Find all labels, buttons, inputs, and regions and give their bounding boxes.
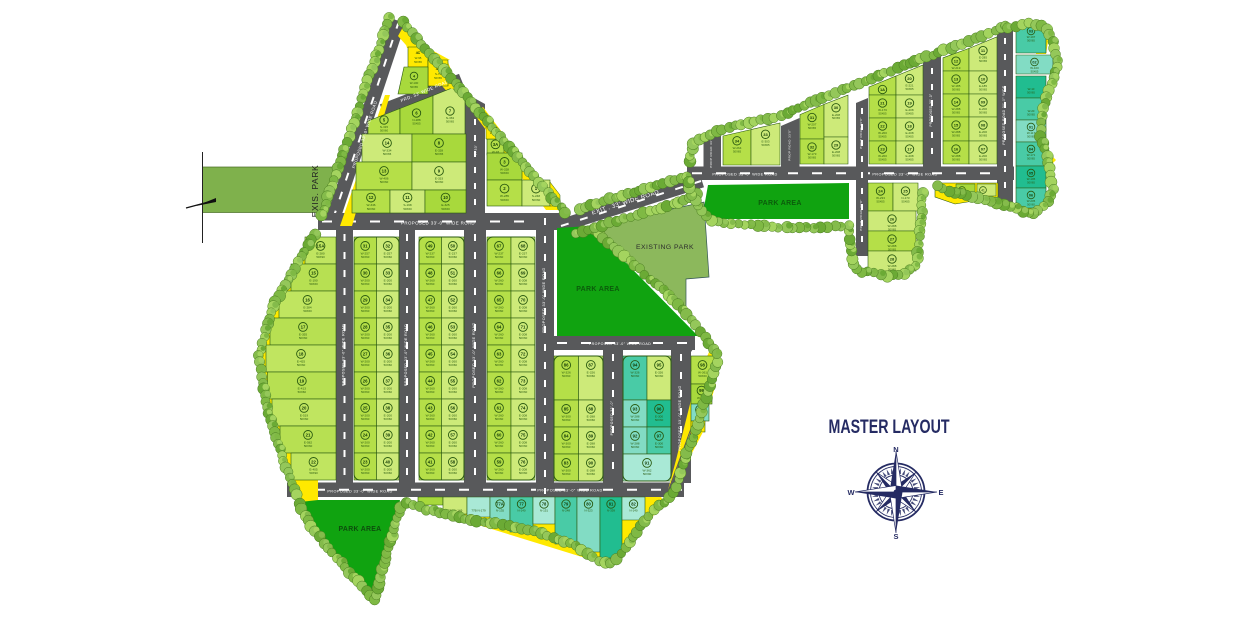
svg-text:50X65: 50X65 <box>1027 91 1035 95</box>
svg-text:34: 34 <box>385 298 390 303</box>
svg-text:84: 84 <box>564 434 569 439</box>
svg-text:50X60: 50X60 <box>298 390 307 394</box>
svg-text:72: 72 <box>521 352 526 357</box>
svg-text:E: E <box>938 488 943 497</box>
svg-text:50: 50 <box>450 244 455 249</box>
svg-text:50X60: 50X60 <box>631 374 640 378</box>
svg-text:50X60: 50X60 <box>361 390 370 394</box>
svg-text:PROPOSED 33'-0" WIDE ROAD: PROPOSED 33'-0" WIDE ROAD <box>872 173 937 177</box>
svg-text:50X60: 50X60 <box>562 445 571 449</box>
svg-text:92: 92 <box>633 434 638 439</box>
svg-text:PROPOSED ROAD 30'-0" WIDE: PROPOSED ROAD 30'-0" WIDE <box>1002 85 1006 145</box>
svg-text:98: 98 <box>700 363 705 368</box>
svg-text:82: 82 <box>631 502 636 507</box>
svg-text:PROPOSED 33'-0" WIDE ROAD: PROPOSED 33'-0" WIDE ROAD <box>401 221 475 226</box>
svg-text:03: 03 <box>1029 30 1033 34</box>
svg-text:28: 28 <box>363 325 368 330</box>
svg-text:50X60: 50X60 <box>449 363 458 367</box>
svg-text:50X65: 50X65 <box>446 120 455 124</box>
svg-text:EXISTING PARK: EXISTING PARK <box>636 244 694 251</box>
svg-text:PROPOSED 33'-0" WIDE ROAD: PROPOSED 33'-0" WIDE ROAD <box>678 385 682 450</box>
svg-text:50X60: 50X60 <box>304 444 313 448</box>
svg-text:89: 89 <box>588 434 593 439</box>
svg-text:50X65: 50X65 <box>808 126 817 130</box>
svg-text:50X60: 50X60 <box>426 336 435 340</box>
svg-text:34: 34 <box>735 138 740 143</box>
svg-text:23: 23 <box>880 147 885 152</box>
svg-text:N-323: N-323 <box>584 509 593 513</box>
svg-text:19: 19 <box>907 101 912 106</box>
svg-text:50X60: 50X60 <box>631 418 640 422</box>
svg-text:15: 15 <box>954 123 959 128</box>
svg-text:30: 30 <box>834 105 839 110</box>
svg-text:29: 29 <box>363 298 368 303</box>
svg-text:50X60: 50X60 <box>384 444 393 448</box>
svg-text:PARK AREA: PARK AREA <box>339 526 382 533</box>
svg-text:21: 21 <box>880 101 885 106</box>
svg-text:50X60: 50X60 <box>519 471 528 475</box>
svg-text:83: 83 <box>564 461 569 466</box>
svg-text:39: 39 <box>385 433 390 438</box>
svg-text:76: 76 <box>521 460 526 465</box>
svg-text:74: 74 <box>521 406 526 411</box>
svg-text:50X65: 50X65 <box>832 154 841 158</box>
svg-text:PROPOSED 33'-0" WIDE ROAD: PROPOSED 33'-0" WIDE ROAD <box>537 489 602 493</box>
svg-text:91: 91 <box>645 461 650 466</box>
svg-text:40: 40 <box>385 460 390 465</box>
svg-text:77: 77 <box>519 502 524 507</box>
svg-text:27: 27 <box>890 237 895 242</box>
svg-text:14: 14 <box>385 141 390 146</box>
svg-text:32: 32 <box>385 244 390 249</box>
svg-text:50X60: 50X60 <box>361 444 370 448</box>
svg-text:50X60: 50X60 <box>698 374 707 378</box>
svg-text:62: 62 <box>497 379 502 384</box>
svg-text:50X60: 50X60 <box>519 390 528 394</box>
svg-text:50X65: 50X65 <box>1031 70 1039 74</box>
svg-text:50X60: 50X60 <box>384 336 393 340</box>
svg-text:50X60: 50X60 <box>532 198 541 202</box>
svg-text:52: 52 <box>450 298 455 303</box>
svg-text:W-95: W-95 <box>415 56 422 60</box>
svg-text:3A: 3A <box>493 142 499 147</box>
svg-text:PROPOSED 33'-0" WIDE ROAD: PROPOSED 33'-0" WIDE ROAD <box>542 267 546 332</box>
svg-text:W-171: W-171 <box>1027 153 1036 157</box>
svg-text:54: 54 <box>450 352 455 357</box>
svg-text:49: 49 <box>428 244 433 249</box>
svg-text:50X60: 50X60 <box>426 309 435 313</box>
svg-text:81: 81 <box>609 502 614 507</box>
svg-text:73: 73 <box>521 379 526 384</box>
svg-text:50X60: 50X60 <box>500 171 509 175</box>
svg-text:50X90: 50X90 <box>643 472 652 476</box>
svg-text:13: 13 <box>382 169 387 174</box>
svg-text:W-197: W-197 <box>1027 35 1036 39</box>
svg-text:PROP ROAD 33'0": PROP ROAD 33'0" <box>788 129 792 160</box>
svg-text:15A: 15A <box>317 244 325 249</box>
svg-text:20: 20 <box>907 76 912 81</box>
svg-text:50X65: 50X65 <box>952 111 961 115</box>
svg-text:PROPOSED 33'-0" WIDE ROAD: PROPOSED 33'-0" WIDE ROAD <box>327 490 392 494</box>
svg-text:50X60: 50X60 <box>495 336 504 340</box>
svg-text:70: 70 <box>521 298 526 303</box>
svg-text:N-359: N-359 <box>607 509 616 513</box>
svg-text:27: 27 <box>363 352 368 357</box>
svg-text:24: 24 <box>878 189 883 194</box>
svg-text:87: 87 <box>588 363 593 368</box>
svg-text:50X65: 50X65 <box>952 134 961 138</box>
svg-text:50X60: 50X60 <box>309 282 318 286</box>
svg-text:50X65: 50X65 <box>434 76 442 80</box>
svg-text:50X65: 50X65 <box>979 88 988 92</box>
svg-text:PROP ROAD 33'0": PROP ROAD 33'0" <box>859 199 863 230</box>
svg-text:06: 06 <box>1029 194 1033 198</box>
svg-text:50X65: 50X65 <box>832 116 841 120</box>
svg-text:50X60: 50X60 <box>435 180 444 184</box>
svg-text:50X65: 50X65 <box>901 200 910 204</box>
svg-text:26: 26 <box>363 379 368 384</box>
svg-text:50X60: 50X60 <box>449 336 458 340</box>
svg-text:50X65: 50X65 <box>878 158 887 162</box>
svg-text:4C: 4C <box>416 51 421 55</box>
svg-text:41: 41 <box>981 188 985 192</box>
svg-text:50X60: 50X60 <box>361 282 370 286</box>
svg-text:PROPOSED 33'-0" WIDE ROAD: PROPOSED 33'-0" WIDE ROAD <box>472 322 476 387</box>
svg-text:22: 22 <box>311 460 316 465</box>
svg-text:71: 71 <box>521 325 526 330</box>
svg-text:50X60: 50X60 <box>426 282 435 286</box>
svg-text:18: 18 <box>299 352 304 357</box>
svg-text:50X60: 50X60 <box>384 471 393 475</box>
svg-text:50X65: 50X65 <box>979 158 988 162</box>
svg-text:1A: 1A <box>880 87 885 92</box>
svg-text:07: 07 <box>981 147 986 152</box>
svg-text:50X60: 50X60 <box>380 128 389 132</box>
svg-text:50X90: 50X90 <box>309 471 318 475</box>
svg-text:88: 88 <box>588 407 593 412</box>
svg-text:50X60: 50X60 <box>449 309 458 313</box>
svg-text:50X60: 50X60 <box>519 417 528 421</box>
svg-text:64: 64 <box>497 325 502 330</box>
svg-text:23: 23 <box>363 460 368 465</box>
svg-text:50X60: 50X60 <box>562 472 571 476</box>
svg-text:63: 63 <box>497 352 502 357</box>
svg-text:50X65: 50X65 <box>952 88 961 92</box>
svg-text:50X60: 50X60 <box>587 445 596 449</box>
svg-text:50X60: 50X60 <box>495 390 504 394</box>
svg-text:50X60: 50X60 <box>384 255 393 259</box>
svg-text:50X65: 50X65 <box>412 122 421 126</box>
svg-text:16: 16 <box>954 147 959 152</box>
svg-text:50X60: 50X60 <box>495 471 504 475</box>
svg-text:60: 60 <box>497 433 502 438</box>
svg-text:68: 68 <box>521 244 526 249</box>
svg-text:50X60: 50X60 <box>495 309 504 313</box>
svg-text:PROPOSED 33'-0" WIDE ROAD: PROPOSED 33'-0" WIDE ROAD <box>712 173 777 177</box>
svg-text:N-135: N-135 <box>496 509 505 513</box>
svg-text:47: 47 <box>428 298 433 303</box>
svg-text:25: 25 <box>903 189 908 194</box>
svg-text:58: 58 <box>450 460 455 465</box>
svg-text:12: 12 <box>369 195 374 200</box>
svg-text:50X60: 50X60 <box>562 374 571 378</box>
svg-text:50X60: 50X60 <box>519 363 528 367</box>
svg-text:13: 13 <box>954 77 959 82</box>
svg-text:46: 46 <box>428 325 433 330</box>
svg-text:14: 14 <box>954 100 959 105</box>
svg-text:77B N-179: 77B N-179 <box>471 509 486 513</box>
svg-text:W: W <box>847 488 855 497</box>
svg-text:50X65: 50X65 <box>979 134 988 138</box>
svg-text:50X60: 50X60 <box>500 198 509 202</box>
svg-text:15: 15 <box>311 271 316 276</box>
svg-text:96: 96 <box>657 407 662 412</box>
svg-text:05: 05 <box>1029 172 1033 176</box>
svg-text:P. 33': P. 33' <box>474 145 478 155</box>
svg-text:32: 32 <box>810 145 815 150</box>
svg-text:19: 19 <box>299 379 304 384</box>
svg-text:50X60: 50X60 <box>449 390 458 394</box>
svg-text:50X60: 50X60 <box>449 282 458 286</box>
svg-text:12: 12 <box>954 59 959 64</box>
svg-text:50X60: 50X60 <box>587 418 596 422</box>
svg-text:61: 61 <box>497 406 502 411</box>
svg-text:50X65: 50X65 <box>979 59 988 63</box>
svg-text:50X60: 50X60 <box>449 444 458 448</box>
svg-text:50X60: 50X60 <box>495 363 504 367</box>
svg-text:25: 25 <box>363 406 368 411</box>
svg-text:50X60: 50X60 <box>519 255 528 259</box>
svg-text:PROP ROAD 33'0": PROP ROAD 33'0" <box>859 117 863 148</box>
svg-text:22: 22 <box>880 124 885 129</box>
svg-text:20: 20 <box>302 406 307 411</box>
svg-text:50X60: 50X60 <box>380 180 389 184</box>
svg-text:50X90: 50X90 <box>316 255 325 259</box>
svg-text:50X60: 50X60 <box>655 374 664 378</box>
svg-text:PROPOSED 33'-0" WIDE ROAD: PROPOSED 33'-0" WIDE ROAD <box>404 324 408 386</box>
svg-text:50X65: 50X65 <box>761 143 770 147</box>
svg-text:50X60: 50X60 <box>297 363 306 367</box>
svg-text:85: 85 <box>564 407 569 412</box>
svg-text:90: 90 <box>588 461 593 466</box>
svg-text:11: 11 <box>405 195 410 200</box>
svg-text:10: 10 <box>443 195 448 200</box>
svg-text:50X60: 50X60 <box>519 282 528 286</box>
svg-text:56: 56 <box>450 406 455 411</box>
svg-text:50X65: 50X65 <box>952 158 961 162</box>
svg-text:50X60: 50X60 <box>495 417 504 421</box>
svg-text:50X60: 50X60 <box>495 444 504 448</box>
svg-text:50X60: 50X60 <box>361 255 370 259</box>
svg-text:66: 66 <box>497 271 502 276</box>
svg-text:50X60: 50X60 <box>449 471 458 475</box>
svg-text:PROPOSED 33'-0": PROPOSED 33'-0" <box>610 400 614 435</box>
svg-text:50X65: 50X65 <box>733 149 742 153</box>
svg-text:50X65: 50X65 <box>383 152 392 156</box>
svg-text:50X60: 50X60 <box>631 445 640 449</box>
svg-text:N: N <box>893 445 898 454</box>
svg-text:38: 38 <box>385 406 390 411</box>
svg-text:31: 31 <box>363 244 368 249</box>
svg-text:50X65: 50X65 <box>979 111 988 115</box>
svg-text:50X60: 50X60 <box>655 445 664 449</box>
svg-text:50X65: 50X65 <box>435 152 444 156</box>
svg-text:80: 80 <box>586 502 591 507</box>
svg-text:43: 43 <box>428 406 433 411</box>
svg-text:50X65: 50X65 <box>878 135 887 139</box>
svg-text:86: 86 <box>564 363 569 368</box>
svg-text:65: 65 <box>497 298 502 303</box>
svg-text:PARK AREA: PARK AREA <box>758 200 802 207</box>
svg-text:50X60: 50X60 <box>361 309 370 313</box>
svg-text:50X60: 50X60 <box>495 282 504 286</box>
svg-text:50X60: 50X60 <box>361 363 370 367</box>
svg-text:97: 97 <box>657 434 662 439</box>
svg-text:50X60: 50X60 <box>449 417 458 421</box>
svg-text:50X60: 50X60 <box>361 471 370 475</box>
svg-text:50X65: 50X65 <box>1027 39 1035 43</box>
svg-text:57: 57 <box>450 433 455 438</box>
svg-text:W-100: W-100 <box>410 81 419 85</box>
svg-text:50X65: 50X65 <box>1027 157 1035 161</box>
svg-text:41: 41 <box>428 460 433 465</box>
svg-text:50X60: 50X60 <box>519 336 528 340</box>
svg-text:50X60: 50X60 <box>441 207 450 211</box>
svg-text:50X60: 50X60 <box>384 417 393 421</box>
svg-text:50X60: 50X60 <box>403 207 412 211</box>
svg-text:50X65: 50X65 <box>905 87 914 91</box>
svg-text:PROPOSED 33'-0" WIDE ROAD: PROPOSED 33'-0" WIDE ROAD <box>342 324 346 386</box>
svg-text:37: 37 <box>385 379 390 384</box>
svg-text:50X60: 50X60 <box>449 255 458 259</box>
svg-text:51: 51 <box>450 271 455 276</box>
svg-text:50X65: 50X65 <box>1027 113 1035 117</box>
svg-text:30: 30 <box>363 271 368 276</box>
svg-text:50X60: 50X60 <box>300 417 309 421</box>
svg-text:59: 59 <box>497 460 502 465</box>
svg-text:50X65: 50X65 <box>808 156 817 160</box>
svg-text:48: 48 <box>428 271 433 276</box>
svg-text:42: 42 <box>428 433 433 438</box>
svg-text:50X65: 50X65 <box>1027 181 1035 185</box>
svg-text:75: 75 <box>521 433 526 438</box>
svg-text:77A: 77A <box>496 502 504 507</box>
svg-text:50X65: 50X65 <box>905 112 914 116</box>
svg-text:50X60: 50X60 <box>367 207 376 211</box>
svg-text:50X65: 50X65 <box>878 112 887 116</box>
svg-text:50X60: 50X60 <box>361 336 370 340</box>
svg-text:35: 35 <box>385 325 390 330</box>
svg-text:93: 93 <box>633 407 638 412</box>
svg-text:50X60: 50X60 <box>426 363 435 367</box>
svg-text:50X65: 50X65 <box>905 158 914 162</box>
svg-text:16: 16 <box>305 298 310 303</box>
svg-text:50X65: 50X65 <box>876 200 885 204</box>
svg-text:EXIS. PARK: EXIS. PARK <box>310 165 320 218</box>
svg-text:36: 36 <box>385 352 390 357</box>
svg-text:26: 26 <box>890 217 895 222</box>
svg-text:50X60: 50X60 <box>426 255 435 259</box>
svg-text:50X60: 50X60 <box>426 390 435 394</box>
svg-text:33: 33 <box>385 271 390 276</box>
svg-text:W-100: W-100 <box>1030 66 1039 70</box>
svg-text:W-195: W-195 <box>1027 177 1036 181</box>
svg-text:94: 94 <box>633 363 638 368</box>
svg-text:50X60: 50X60 <box>562 418 571 422</box>
svg-text:02: 02 <box>1032 61 1036 65</box>
svg-text:08: 08 <box>981 123 986 128</box>
svg-text:78: 78 <box>542 502 547 507</box>
svg-text:28: 28 <box>890 257 895 262</box>
svg-text:50X60: 50X60 <box>384 282 393 286</box>
svg-text:50X65: 50X65 <box>414 60 422 64</box>
svg-text:PROPOSED 30'-0": PROPOSED 30'-0" <box>929 93 933 126</box>
svg-text:53: 53 <box>450 325 455 330</box>
svg-text:50X60: 50X60 <box>495 255 504 259</box>
svg-text:55: 55 <box>450 379 455 384</box>
svg-text:W-117: W-117 <box>1027 131 1036 135</box>
svg-text:17: 17 <box>907 147 912 152</box>
svg-text:50X60: 50X60 <box>361 417 370 421</box>
svg-text:24: 24 <box>363 433 368 438</box>
svg-text:17: 17 <box>301 325 306 330</box>
svg-text:N-140: N-140 <box>517 509 526 513</box>
svg-text:50X60: 50X60 <box>384 309 393 313</box>
svg-text:MASTER LAYOUT: MASTER LAYOUT <box>829 416 950 438</box>
svg-text:50X65: 50X65 <box>1027 203 1035 207</box>
svg-text:50X60: 50X60 <box>426 444 435 448</box>
svg-text:10: 10 <box>981 77 986 82</box>
svg-text:29: 29 <box>834 143 839 148</box>
svg-text:44: 44 <box>428 379 433 384</box>
svg-text:67: 67 <box>497 244 502 249</box>
svg-text:50X60: 50X60 <box>303 309 312 313</box>
svg-text:79: 79 <box>564 502 569 507</box>
svg-text:01: 01 <box>1029 126 1033 130</box>
svg-text:50X65: 50X65 <box>905 135 914 139</box>
svg-text:45: 45 <box>428 352 433 357</box>
svg-text:18: 18 <box>907 124 912 129</box>
svg-text:W-205: W-205 <box>1027 199 1036 203</box>
svg-text:N-151: N-151 <box>540 509 549 513</box>
svg-text:50X60: 50X60 <box>384 363 393 367</box>
svg-text:W-20: W-20 <box>1028 109 1035 113</box>
svg-text:50X60: 50X60 <box>426 471 435 475</box>
svg-text:95: 95 <box>657 363 662 368</box>
svg-text:50X60: 50X60 <box>384 390 393 394</box>
svg-text:50X60: 50X60 <box>519 309 528 313</box>
svg-text:69: 69 <box>521 271 526 276</box>
svg-text:50X60: 50X60 <box>587 472 596 476</box>
svg-text:PROPOSED 33'-0" WIDE ROAD: PROPOSED 33'-0" WIDE ROAD <box>589 342 651 346</box>
svg-text:W-10: W-10 <box>1028 87 1035 91</box>
svg-text:50X60: 50X60 <box>426 417 435 421</box>
svg-text:PARK AREA: PARK AREA <box>576 286 620 293</box>
svg-text:PROP ROAD 33'0": PROP ROAD 33'0" <box>709 136 713 167</box>
svg-text:33: 33 <box>763 132 768 137</box>
svg-text:N-248: N-248 <box>562 509 571 513</box>
svg-text:50X60: 50X60 <box>299 336 308 340</box>
svg-text:50X60: 50X60 <box>587 374 596 378</box>
svg-text:N-140: N-140 <box>629 509 638 513</box>
svg-text:09: 09 <box>981 100 986 105</box>
svg-text:50X60: 50X60 <box>519 444 528 448</box>
svg-text:21: 21 <box>306 433 311 438</box>
svg-text:50X65: 50X65 <box>410 85 418 89</box>
svg-text:31: 31 <box>810 115 815 120</box>
svg-text:50X60: 50X60 <box>655 418 664 422</box>
svg-text:S: S <box>893 532 898 541</box>
